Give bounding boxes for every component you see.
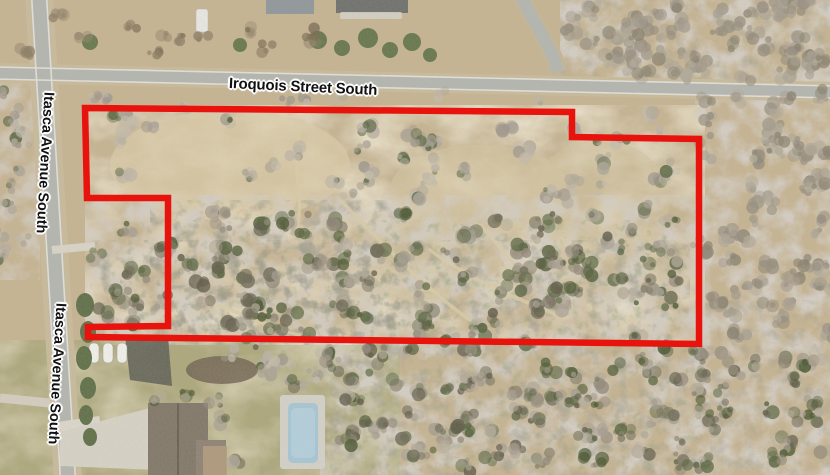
- aerial-map: Iroquois Street South Itasca Avenue Sout…: [0, 0, 830, 475]
- photo-grain: [0, 0, 830, 475]
- aerial-photo: [0, 0, 830, 475]
